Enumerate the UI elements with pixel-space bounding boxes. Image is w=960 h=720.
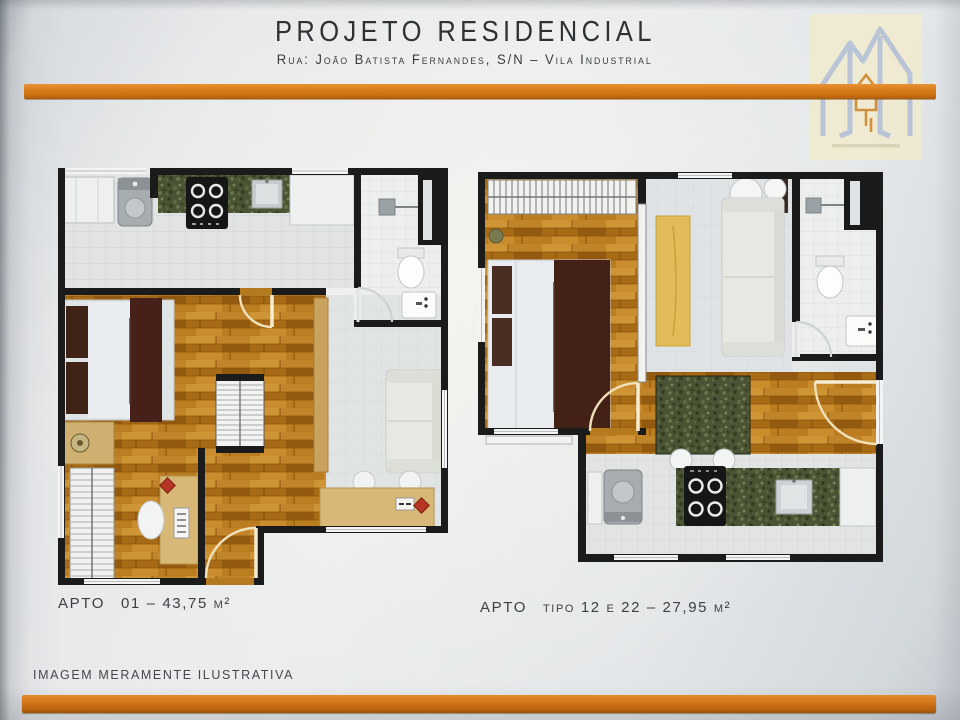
rug-icon	[656, 216, 690, 346]
kitchen-sink-icon	[252, 180, 282, 208]
toilet-icon	[398, 248, 424, 288]
window-sill	[486, 436, 572, 444]
plan-label-apto-01: APTO 01 – 43,75 m²	[58, 595, 231, 612]
plan-label-detail: tipo 12 e 22 – 27,95 m²	[543, 599, 731, 616]
service-counter	[64, 177, 114, 223]
tv-rack-icon	[314, 298, 328, 472]
kitchen-sink-icon	[776, 479, 812, 514]
chair-icon	[138, 501, 164, 539]
plan-label-apto-tipo-12-22: APTO tipo 12 e 22 – 27,95 m²	[480, 599, 731, 616]
cooktop-icon	[186, 177, 228, 229]
logo-caption-blur	[832, 144, 900, 148]
plan-label-prefix: APTO	[480, 599, 527, 616]
washer-icon	[604, 470, 642, 524]
kitchen	[588, 466, 876, 526]
bath-sink-icon	[846, 316, 880, 346]
closet-icon	[488, 180, 636, 214]
floor-plan-apto-01	[58, 168, 448, 592]
hall-closet-icon	[216, 374, 264, 453]
bedside-table-icon	[62, 422, 114, 464]
toilet-icon	[816, 256, 844, 298]
poster-page: PROJETO RESIDENCIAL Rua: João Batista Fe…	[0, 0, 960, 720]
partition-wall	[638, 204, 646, 382]
washer-icon	[118, 178, 152, 226]
kitchen-cabinet	[840, 468, 876, 526]
disclaimer-text: IMAGEM MERAMENTE ILUSTRATIVA	[33, 668, 294, 682]
bottom-accent-bar	[22, 695, 936, 713]
service-area	[64, 177, 152, 226]
kitchen-cabinet	[588, 472, 602, 524]
floor-plan-apto-tipo-12-22	[478, 172, 890, 567]
shower-glass	[418, 175, 441, 245]
bed-icon	[488, 260, 610, 430]
sideboard-icon	[320, 488, 434, 528]
sofa-icon	[722, 198, 784, 356]
plan-label-detail: 01 – 43,75 m²	[121, 595, 231, 612]
wardrobe-icon	[70, 468, 114, 580]
page-title: PROJETO RESIDENCIAL	[275, 16, 656, 49]
bath-sink-icon	[402, 292, 436, 318]
poster-header: PROJETO RESIDENCIAL Rua: João Batista Fe…	[235, 16, 695, 69]
top-accent-bar	[24, 84, 936, 99]
plan-label-prefix: APTO	[58, 595, 105, 612]
round-table-icon	[764, 178, 786, 200]
kitchen-cabinet	[290, 175, 354, 225]
plant-icon	[489, 229, 503, 243]
bed-icon	[62, 298, 174, 422]
cooktop-icon	[684, 466, 726, 526]
sofa-icon	[386, 370, 444, 472]
address-subtitle: Rua: João Batista Fernandes, S/N – Vila …	[277, 52, 653, 67]
